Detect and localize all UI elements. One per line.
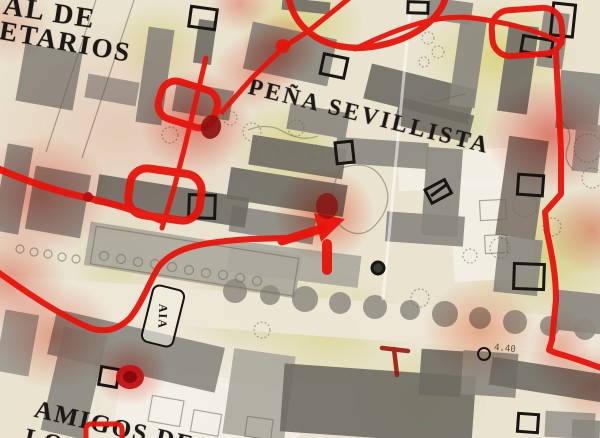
elevation-note: 4.40 [494,343,517,355]
building [572,419,600,438]
building [493,236,543,296]
building [385,211,465,246]
signpost-plate-label: AIA [155,303,171,329]
building [554,290,600,335]
building [25,166,91,239]
building [418,349,463,398]
map-canvas: AL DE IETARIOS PEÑA SEVILLISTA AMIGOS DE… [0,0,600,438]
building [572,123,600,173]
